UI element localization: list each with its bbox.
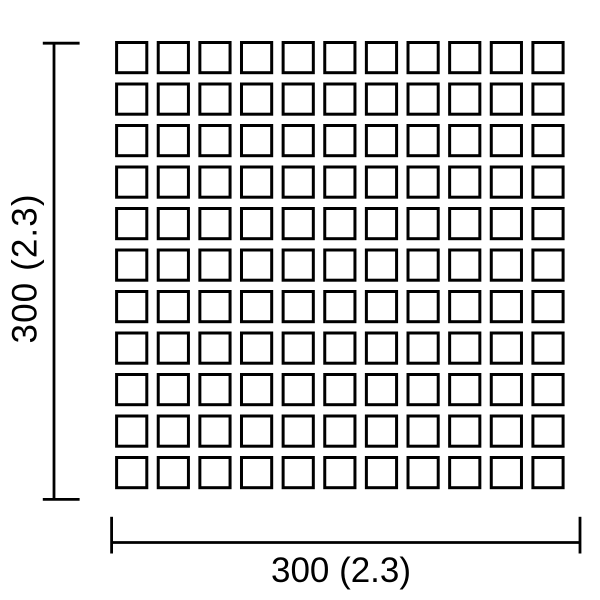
svg-text:300 (2.3): 300 (2.3) — [271, 551, 411, 590]
svg-text:300 (2.3): 300 (2.3) — [5, 195, 44, 344]
